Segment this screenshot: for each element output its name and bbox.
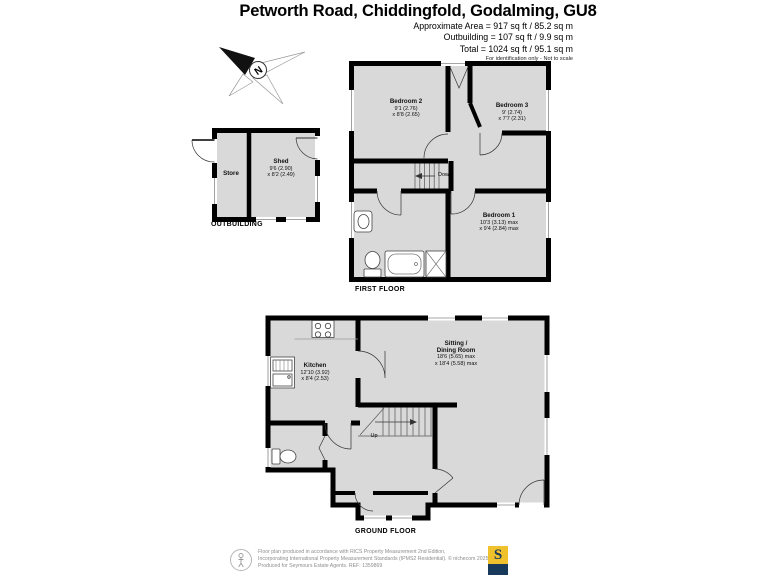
footer-line-3: Produced for Seymours Estate Agents. REF… (258, 563, 490, 570)
seymours-logo: S (488, 546, 508, 575)
page-title: Petworth Road, Chiddingfold, Godalming, … (118, 2, 718, 21)
caption-outbuilding: OUTBUILDING (211, 221, 263, 228)
stairs-label-down: Down (438, 172, 452, 178)
wc-toilet-icon (272, 449, 296, 464)
room-label-bedroom2: Bedroom 2 9'1 (2.76) x 8'8 (2.65) (390, 99, 422, 119)
area-line-outbuilding: Outbuilding = 107 sq ft / 9.9 sq m (413, 32, 573, 43)
room-label-shed: Shed 9'6 (2.90) x 8'2 (2.49) (267, 159, 294, 179)
stairs-label-up: Up (370, 433, 377, 439)
seymours-logo-top: S (488, 546, 508, 564)
first-floor-plan (349, 61, 556, 284)
bathroom-sink-icon (354, 211, 372, 232)
footer-line-2: Incorporating International Property Mea… (258, 556, 490, 563)
room-label-bedroom1: Bedroom 1 10'3 (3.13) max x 9'4 (2.84) m… (479, 213, 518, 233)
toilet-icon (364, 252, 381, 278)
area-line-total: Total = 1024 sq ft / 95.1 sq m (413, 44, 573, 55)
area-summary: Approximate Area = 917 sq ft / 85.2 sq m… (413, 21, 573, 64)
room-label-bedroom3: Bedroom 3 9' (2.74) x 7'7 (2.31) (496, 103, 528, 123)
room-label-sitting-dining: Sitting / Dining Room 18'6 (5.65) max x … (435, 341, 477, 367)
compass-north-icon: N (215, 40, 310, 112)
ground-floor-plan (263, 306, 556, 531)
hob-icon (312, 321, 334, 338)
caption-first-floor: FIRST FLOOR (355, 286, 405, 293)
room-label-kitchen: Kitchen 12'10 (3.92) x 8'4 (2.53) (300, 363, 329, 383)
outbuilding-plan (188, 126, 325, 229)
bathtub-icon (385, 251, 424, 277)
room-label-store: Store (223, 171, 239, 178)
surveyor-person-icon (229, 548, 253, 572)
seymours-logo-bottom (488, 564, 508, 575)
footer-disclaimer: Floor plan produced in accordance with R… (258, 549, 490, 571)
airing-cupboard-icon (426, 251, 446, 277)
area-line-approximate: Approximate Area = 917 sq ft / 85.2 sq m (413, 21, 573, 32)
floorplan-page: Petworth Road, Chiddingfold, Godalming, … (0, 0, 768, 576)
caption-ground-floor: GROUND FLOOR (355, 528, 416, 535)
seymours-logo-letter: S (494, 548, 502, 563)
